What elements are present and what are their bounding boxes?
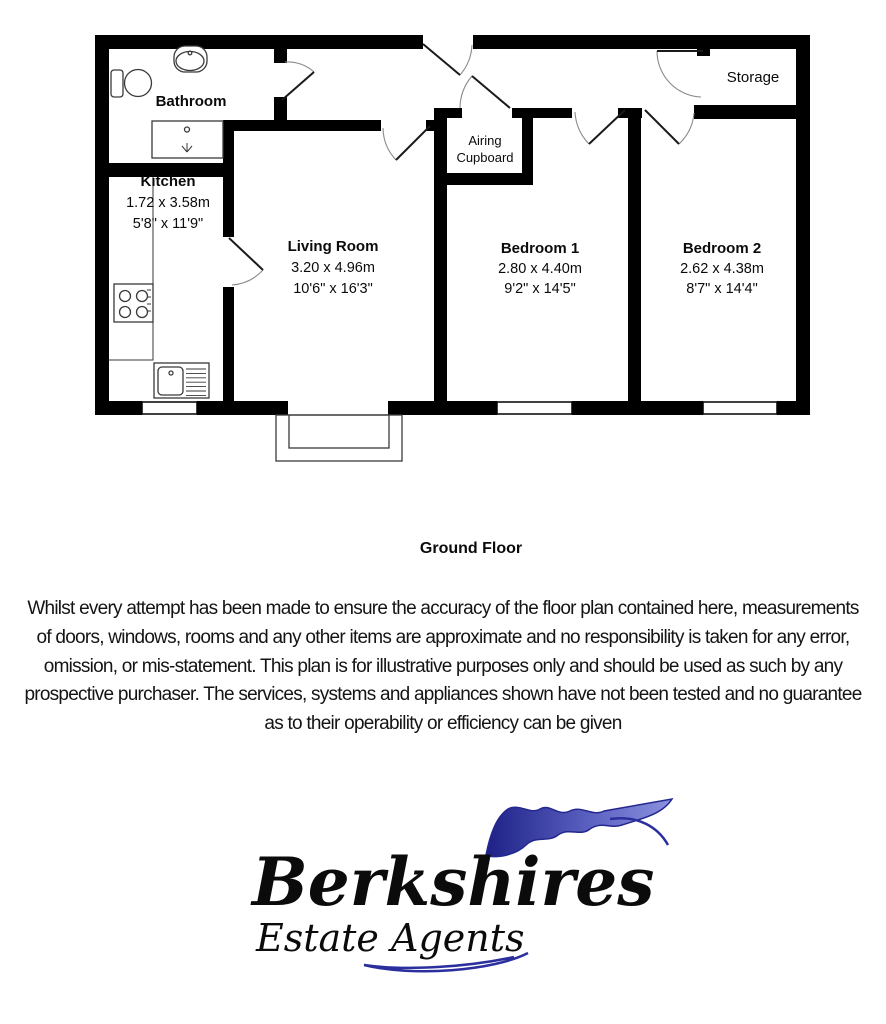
floor-plan: Bathroom Kitchen 1.72 x 3.58m 5'8" x 11'… bbox=[0, 0, 886, 475]
disclaimer-line: omission, or mis-statement. This plan is… bbox=[0, 653, 886, 682]
bedroom1-door bbox=[589, 110, 625, 144]
disclaimer-line: as to their operability or efficiency ca… bbox=[0, 710, 886, 739]
toilet-symbol bbox=[111, 70, 152, 98]
bedroom2-door bbox=[645, 110, 679, 144]
living-room-dim-metric: 3.20 x 4.96m bbox=[291, 260, 375, 276]
floor-title: Ground Floor bbox=[420, 540, 522, 558]
bedroom2-dim-imperial: 8'7" x 14'4" bbox=[686, 281, 757, 297]
room-label-kitchen: Kitchen bbox=[140, 173, 195, 190]
room-label-airing-line2: Cupboard bbox=[456, 150, 513, 165]
berkshires-logo: Berkshires Estate Agents bbox=[238, 793, 674, 988]
logo-tagline: Estate Agents bbox=[255, 916, 525, 960]
room-label-bedroom1: Bedroom 1 bbox=[501, 240, 579, 257]
kitchen-door bbox=[229, 238, 263, 270]
floorplan-page: { "floor_plan": { "title": "Ground Floor… bbox=[0, 0, 886, 1024]
living-room-door bbox=[396, 126, 430, 160]
room-label-storage: Storage bbox=[727, 69, 780, 86]
disclaimer-line: Whilst every attempt has been made to en… bbox=[0, 595, 886, 624]
kitchen-window bbox=[142, 402, 197, 414]
bay-window bbox=[276, 415, 402, 461]
bathroom-door bbox=[282, 72, 314, 100]
bedroom1-dim-metric: 2.80 x 4.40m bbox=[498, 261, 582, 277]
hob-symbol bbox=[114, 284, 153, 322]
room-label-bedroom2: Bedroom 2 bbox=[683, 240, 761, 257]
basin-symbol bbox=[174, 46, 207, 72]
room-label-living-room: Living Room bbox=[288, 238, 379, 255]
airing-cupboard-door bbox=[472, 76, 510, 108]
bedroom1-dim-imperial: 9'2" x 14'5" bbox=[504, 281, 575, 297]
kitchen-sink-symbol bbox=[154, 363, 209, 398]
kitchen-dim-metric: 1.72 x 3.58m bbox=[126, 195, 210, 211]
room-label-airing-line1: Airing bbox=[468, 133, 501, 148]
logo-brand: Berkshires bbox=[250, 843, 654, 921]
bedroom2-dim-metric: 2.62 x 4.38m bbox=[680, 261, 764, 277]
room-label-bathroom: Bathroom bbox=[156, 93, 227, 110]
living-room-dim-imperial: 10'6" x 16'3" bbox=[293, 281, 373, 297]
disclaimer-line: of doors, windows, rooms and any other i… bbox=[0, 624, 886, 653]
kitchen-dim-imperial: 5'8" x 11'9" bbox=[133, 216, 203, 232]
disclaimer-text: Whilst every attempt has been made to en… bbox=[0, 595, 886, 739]
bath-symbol bbox=[152, 121, 223, 158]
bedroom1-window bbox=[497, 402, 572, 414]
entry-door bbox=[423, 44, 460, 75]
disclaimer-line: prospective purchaser. The services, sys… bbox=[0, 681, 886, 710]
bedroom2-window bbox=[703, 402, 777, 414]
